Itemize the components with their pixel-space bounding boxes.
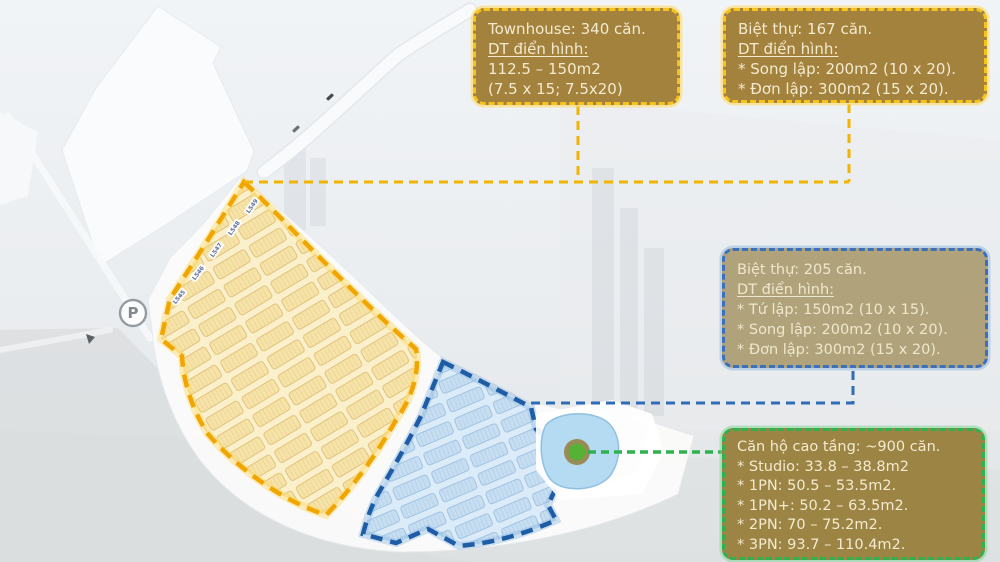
callout-line: * Studio: 33.8 – 38.8m2 <box>737 458 970 478</box>
callout-townhouse: Townhouse: 340 căn. DT điển hình: 112.5 … <box>473 8 680 105</box>
callout-villa-blue: Biệt thự: 205 căn. DT điển hình: * Tứ lậ… <box>722 248 988 368</box>
callout-line: DT điển hình: <box>488 39 665 59</box>
parking-letter: P <box>128 304 139 322</box>
masterplan-canvas: L549 L548 L547 L546 L545 P Townhouse: 34… <box>0 0 1000 562</box>
callout-line: Căn hộ cao tầng: ~900 căn. <box>737 438 970 458</box>
callout-line: * Song lập: 200m2 (10 x 20). <box>737 320 973 340</box>
pond-parcel <box>536 400 664 500</box>
callout-line: * 1PN+: 50.2 – 63.5m2. <box>737 497 970 517</box>
callout-line: * Đơn lập: 300m2 (15 x 20). <box>737 340 973 360</box>
callout-line: * 3PN: 93.7 – 110.4m2. <box>737 536 970 556</box>
callout-line: (7.5 x 15; 7.5x20) <box>488 79 665 99</box>
callout-line: DT điển hình: <box>737 280 973 300</box>
callout-line: Biệt thự: 205 căn. <box>737 260 973 280</box>
callout-line: Townhouse: 340 căn. <box>488 19 665 39</box>
callout-villa-yellow: Biệt thự: 167 căn. DT điển hình: * Song … <box>723 8 987 103</box>
callout-line: Biệt thự: 167 căn. <box>738 19 972 39</box>
tree-icon <box>564 439 590 465</box>
parking-icon: P <box>120 300 146 326</box>
callout-line: 112.5 – 150m2 <box>488 59 665 79</box>
callout-apartment: Căn hộ cao tầng: ~900 căn. * Studio: 33.… <box>722 428 985 560</box>
callout-line: * Song lập: 200m2 (10 x 20). <box>738 59 972 79</box>
callout-line: * 2PN: 70 – 75.2m2. <box>737 516 970 536</box>
callout-line: * Tứ lập: 150m2 (10 x 15). <box>737 300 973 320</box>
callout-line: * Đơn lập: 300m2 (15 x 20). <box>738 79 972 99</box>
callout-line: * 1PN: 50.5 – 53.5m2. <box>737 477 970 497</box>
callout-line: DT điển hình: <box>738 39 972 59</box>
